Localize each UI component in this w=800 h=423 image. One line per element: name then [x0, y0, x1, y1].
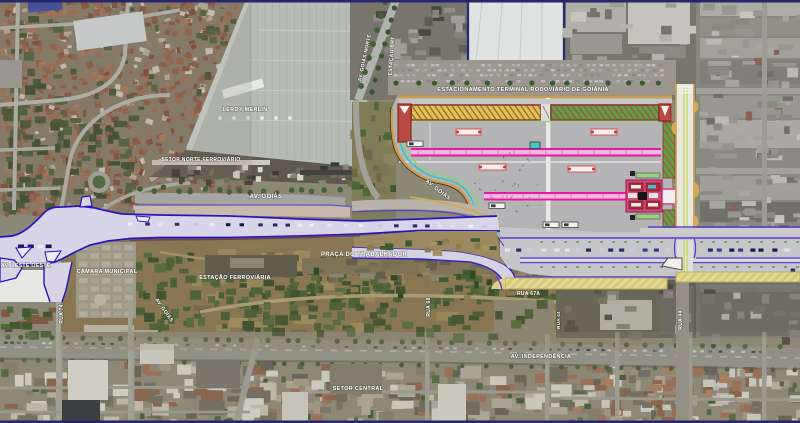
svg-text:LEROY MERLIN: LEROY MERLIN [222, 107, 267, 113]
svg-text:AV. LESTE OESTE: AV. LESTE OESTE [1, 263, 51, 269]
svg-text:CÂMARA MUNICIPAL: CÂMARA MUNICIPAL [77, 268, 138, 275]
svg-text:RUA 44: RUA 44 [678, 310, 684, 329]
svg-text:RUA 74: RUA 74 [59, 304, 65, 323]
svg-text:RUA 44: RUA 44 [556, 311, 561, 329]
svg-text:SETOR NORTE FERROVIÁRIO: SETOR NORTE FERROVIÁRIO [161, 156, 240, 163]
svg-text:ESTAÇÃO FERROVIÁRIA: ESTAÇÃO FERROVIÁRIA [199, 274, 271, 281]
svg-text:AV. GOIÁS: AV. GOIÁS [250, 193, 283, 200]
svg-text:SETOR CENTRAL: SETOR CENTRAL [333, 386, 384, 392]
svg-text:RUA 67A: RUA 67A [517, 291, 540, 297]
svg-text:RUA 68: RUA 68 [426, 297, 432, 316]
svg-text:PRAÇA DO TRABALHADOR: PRAÇA DO TRABALHADOR [321, 252, 407, 258]
svg-text:ESTACIONAMENTO TERMINAL RODOVI: ESTACIONAMENTO TERMINAL RODOVIÁRIO DE GO… [437, 86, 609, 93]
svg-text:AV. INDEPENDÊNCIA: AV. INDEPENDÊNCIA [511, 352, 571, 360]
